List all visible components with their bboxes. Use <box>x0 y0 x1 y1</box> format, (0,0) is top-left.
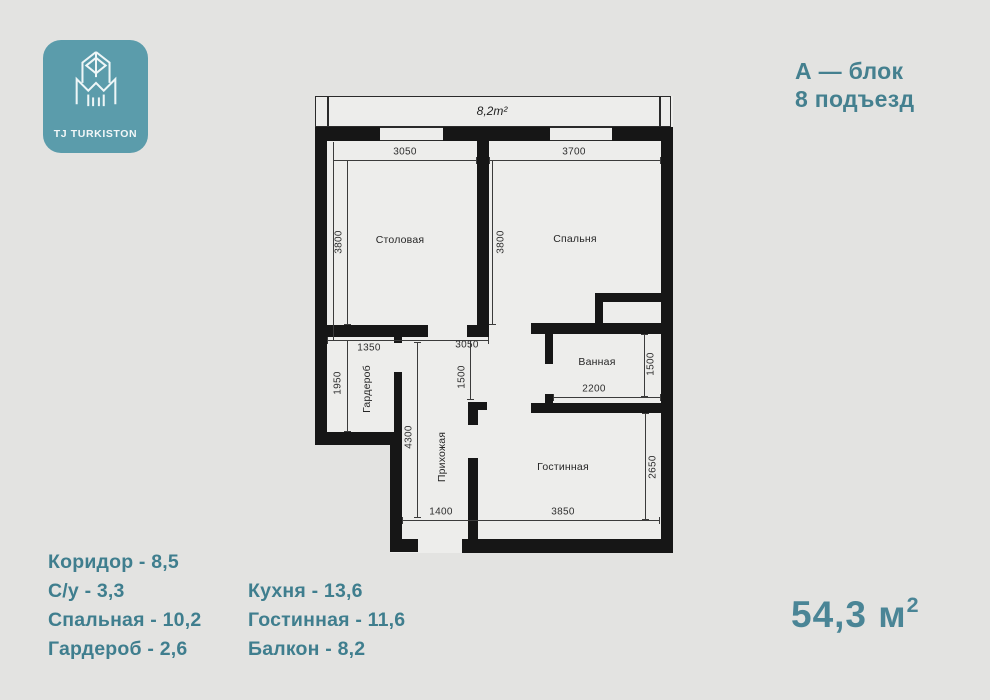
wall-living-left <box>468 458 478 539</box>
room-label-dining: Столовая <box>376 234 425 246</box>
room-label-bedroom: Спальня <box>553 233 597 245</box>
dimension-line <box>347 160 348 325</box>
wall-left <box>315 127 327 445</box>
wall-top <box>315 127 673 141</box>
areas-list-column-1: Коридор - 8,5 С/у - 3,3 Спальная - 10,2 … <box>48 548 201 664</box>
building-logo-icon <box>67 50 125 112</box>
area-item-bathroom: С/у - 3,3 <box>48 577 201 606</box>
dim-label-corridor-width: 3050 <box>455 340 478 351</box>
dimension-line <box>553 397 661 398</box>
window-opening <box>550 127 612 141</box>
window-opening <box>380 127 443 141</box>
room-label-wardrobe: Гардероб <box>361 365 373 413</box>
floor-plan: 8,2m² 3050 3700 3800 3800 1350 3050 1950… <box>315 96 673 553</box>
room-label-bathroom: Ванная <box>578 356 615 368</box>
wall-bath-left-upper <box>545 334 553 364</box>
dimension-line <box>402 520 660 521</box>
wall-lower-left <box>390 432 402 539</box>
dimension-line <box>417 342 418 518</box>
area-item-corridor: Коридор - 8,5 <box>48 548 201 577</box>
wall-dining-bottom <box>327 325 428 337</box>
dim-label-dining-width: 3050 <box>393 147 416 158</box>
wall-bottom <box>462 539 673 553</box>
total-area-sup: 2 <box>907 593 920 617</box>
wall-right <box>661 127 673 553</box>
company-logo: TJ TURKISTON <box>43 40 148 153</box>
dimension-line <box>492 160 493 325</box>
plan-header: А — блок 8 подъезд <box>795 57 914 113</box>
balcony-divider-line <box>659 96 661 127</box>
areas-list-column-2: Кухня - 13,6 Гостинная - 11,6 Балкон - 8… <box>248 577 405 664</box>
dim-label-wardrobe-width: 1350 <box>357 343 380 354</box>
wall-step <box>315 432 402 445</box>
wall-bath-bottom <box>531 403 661 413</box>
dim-label-dining-height: 3800 <box>334 230 345 253</box>
dim-label-bath-height: 1500 <box>646 352 657 375</box>
wall-corridor-stub <box>467 325 489 337</box>
dim-label-entry-width: 1400 <box>429 507 452 518</box>
wall-shaft-top <box>595 293 661 302</box>
block-label: А — блок <box>795 57 914 85</box>
dimension-line <box>347 340 348 432</box>
wall-dining-bedroom <box>477 141 489 325</box>
balcony-divider-line <box>327 96 329 127</box>
dim-label-hall-height: 4300 <box>404 425 415 448</box>
dim-label-bedroom-width: 3700 <box>562 147 585 158</box>
wall-living-stub-v <box>468 402 478 425</box>
area-item-bedroom: Спальная - 10,2 <box>48 606 201 635</box>
dimension-line <box>645 413 646 520</box>
dimension-line <box>489 160 661 161</box>
plan-cutout <box>315 445 390 553</box>
dim-label-living-height: 2650 <box>648 455 659 478</box>
dimension-line <box>333 160 477 161</box>
area-item-living: Гостинная - 11,6 <box>248 606 405 635</box>
area-item-wardrobe: Гардероб - 2,6 <box>48 635 201 664</box>
room-label-hallway: Прихожая <box>436 432 448 482</box>
wall-wardrobe-right <box>394 372 402 432</box>
wall-shaft-left <box>595 293 603 332</box>
dim-label-wardrobe-height: 1950 <box>333 371 344 394</box>
entrance-label: 8 подъезд <box>795 85 914 113</box>
area-item-balcony: Балкон - 8,2 <box>248 635 405 664</box>
brand-name: TJ TURKISTON <box>43 128 148 140</box>
dim-label-bath-width: 2200 <box>582 384 605 395</box>
total-area-value: 54,3 м <box>791 594 907 635</box>
dim-label-hall-width: 1500 <box>457 365 468 388</box>
balcony-area-label: 8,2m² <box>477 104 508 118</box>
total-area: 54,3 м2 <box>791 594 920 636</box>
room-label-living: Гостинная <box>537 461 589 473</box>
area-item-kitchen: Кухня - 13,6 <box>248 577 405 606</box>
dim-label-bedroom-height: 3800 <box>496 230 507 253</box>
dim-label-living-width: 3850 <box>551 507 574 518</box>
